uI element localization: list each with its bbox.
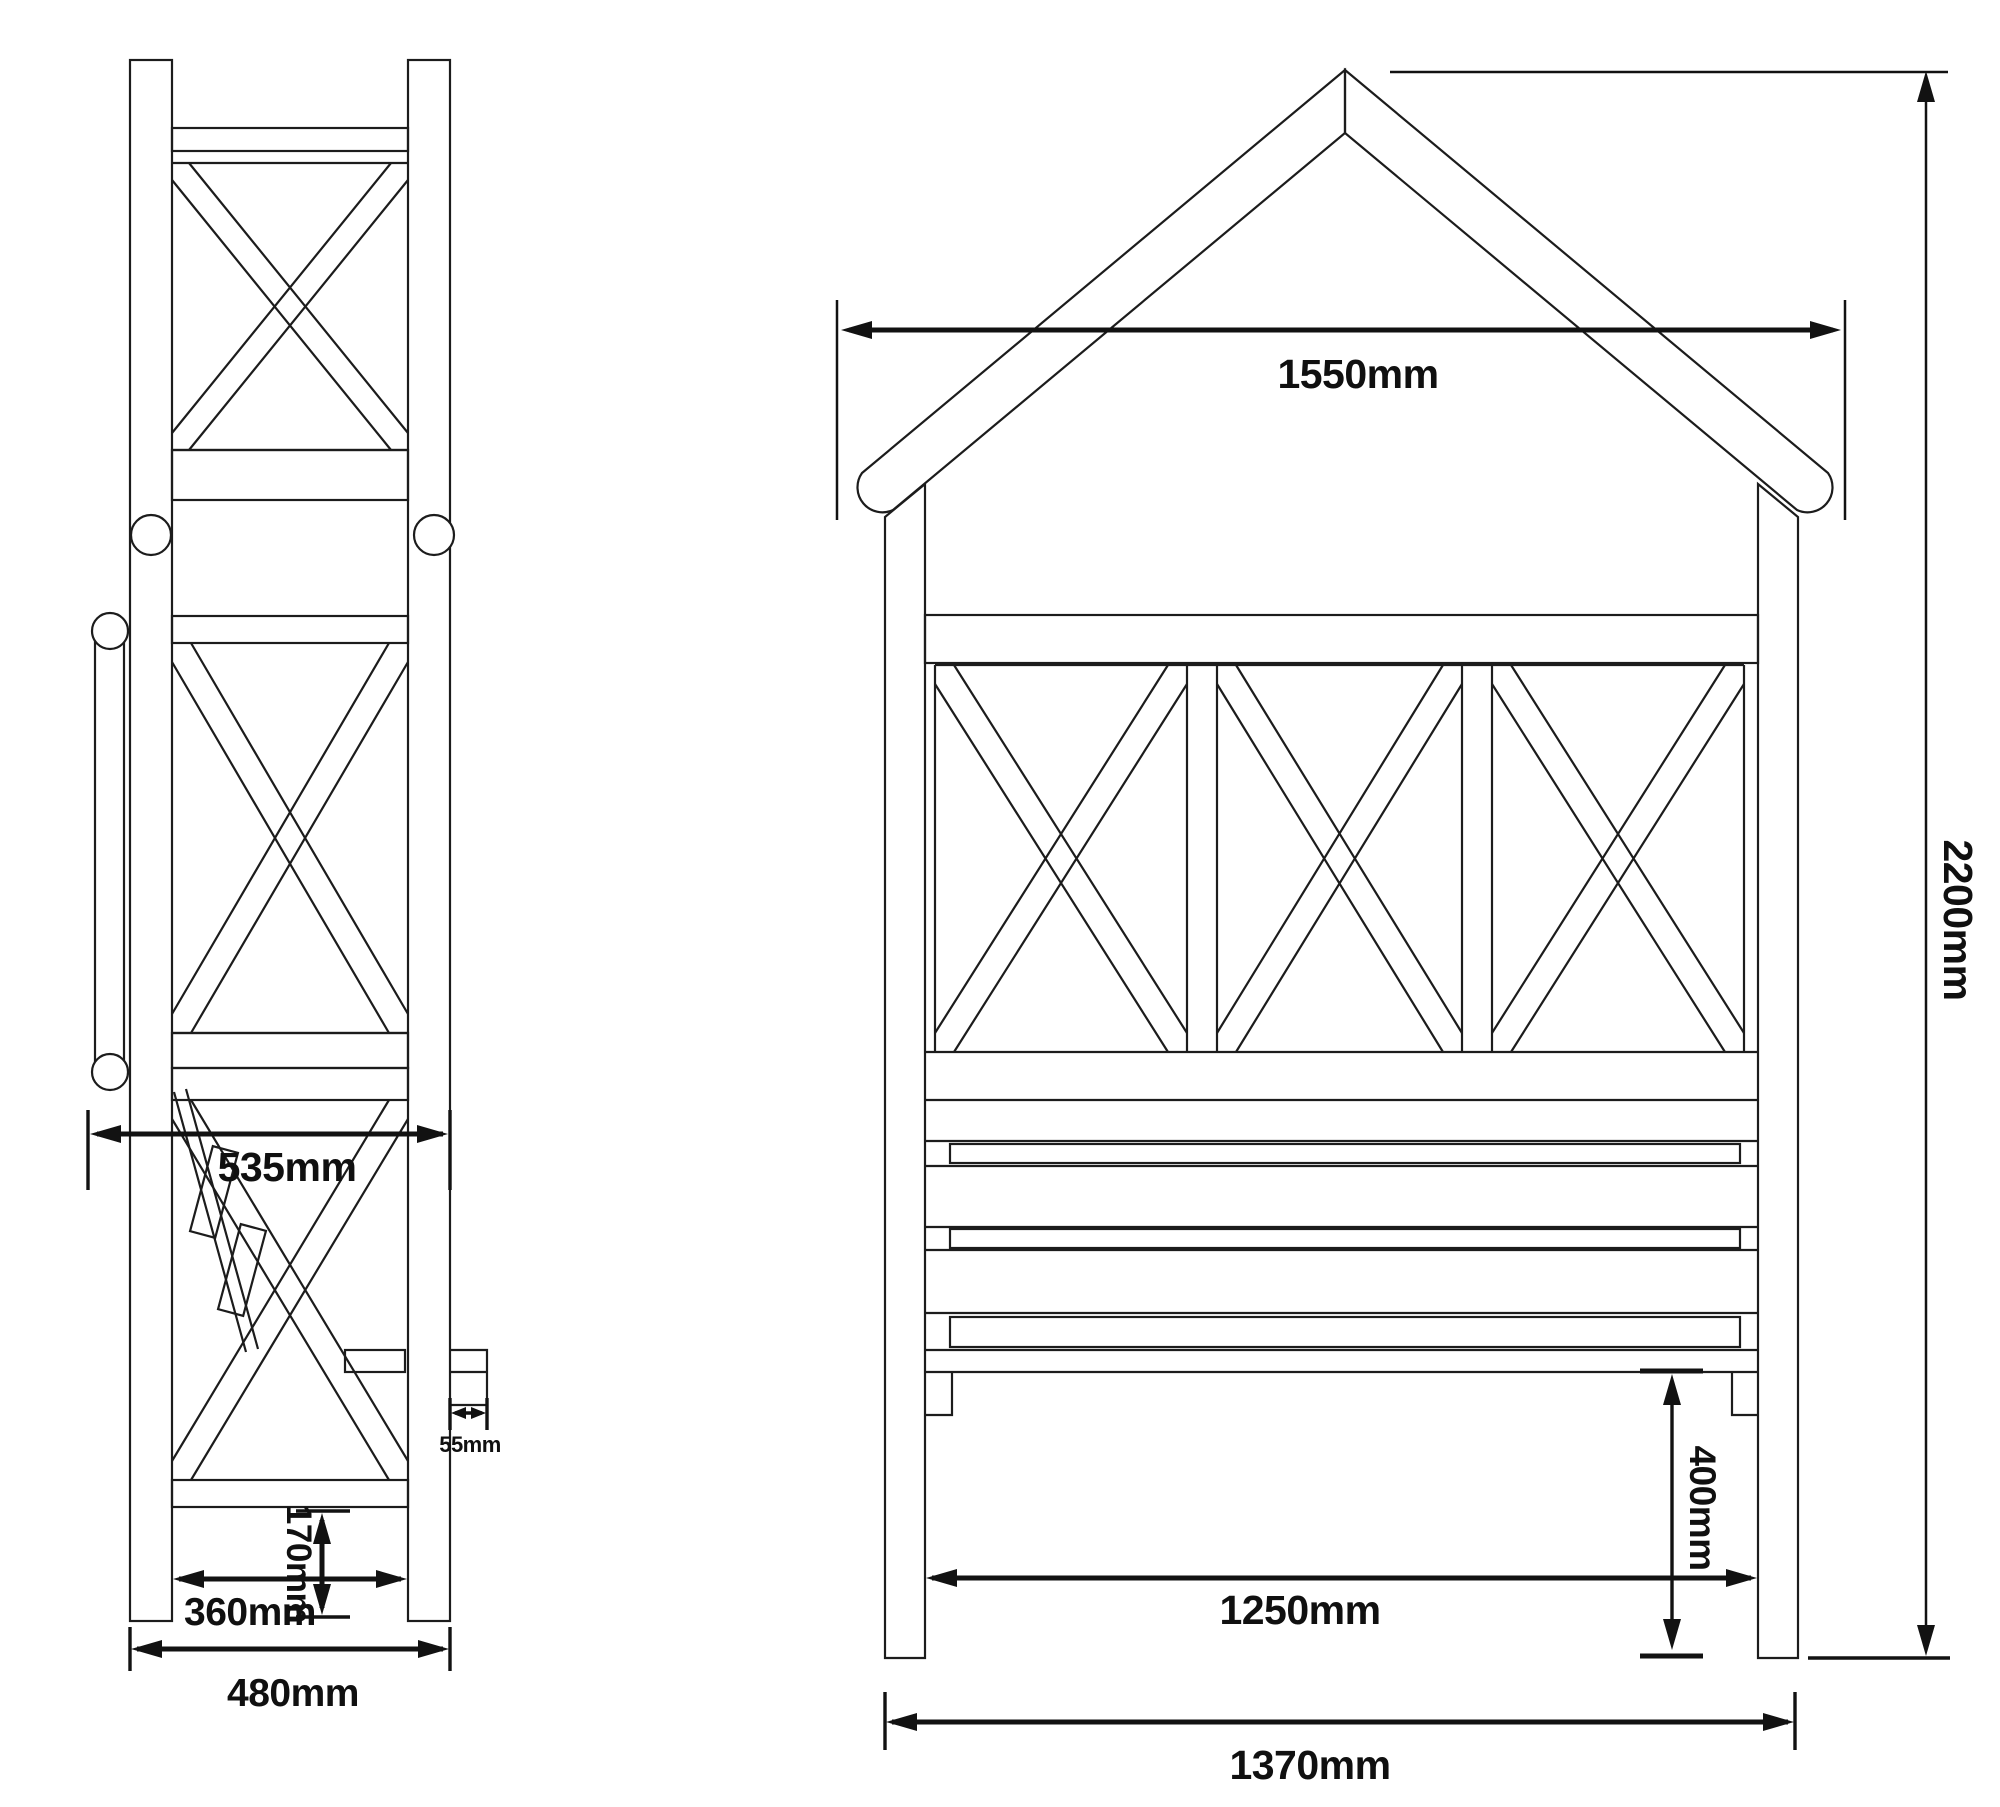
arrowhead-up-icon bbox=[1663, 1374, 1681, 1405]
arrowhead-right-icon bbox=[418, 1640, 449, 1658]
side-top-rail bbox=[172, 128, 408, 151]
side-armrest-bar bbox=[95, 640, 124, 1062]
front-view: 1550mm 2200mm 400mm 1250mm bbox=[837, 70, 1981, 1788]
dimension-front-inner-width: 1250mm bbox=[926, 1569, 1757, 1633]
dimension-front-height: 2200mm bbox=[1390, 71, 1981, 1658]
dim-1250-label: 1250mm bbox=[1219, 1587, 1380, 1633]
arrowhead-down-icon bbox=[1917, 1625, 1935, 1656]
arrowhead-left-icon bbox=[131, 1640, 162, 1658]
arrowhead-left-icon bbox=[886, 1713, 917, 1731]
side-seat-slat-section bbox=[345, 1350, 405, 1372]
side-armrest-bottom-peg bbox=[92, 1054, 128, 1090]
side-left-dowel-peg bbox=[131, 515, 171, 555]
dimension-front-outer-width: 1370mm bbox=[885, 1692, 1795, 1788]
dimension-side-outer-width: 480mm bbox=[130, 1627, 450, 1715]
arrowhead-left-icon bbox=[841, 321, 872, 339]
dim-535-label: 535mm bbox=[218, 1144, 357, 1190]
side-mid-rail bbox=[172, 616, 408, 643]
front-left-post bbox=[885, 484, 925, 1658]
dimension-side-inner-width: 360mm bbox=[173, 1570, 407, 1634]
arrowhead-down-icon bbox=[1663, 1619, 1681, 1650]
side-upper-x-brace bbox=[172, 163, 408, 450]
dimension-side-depth: 535mm bbox=[88, 1110, 450, 1190]
side-seat-rail bbox=[172, 1068, 408, 1100]
front-roof-left-board bbox=[857, 70, 1345, 512]
dim-2200-label: 2200mm bbox=[1935, 839, 1981, 1000]
side-middle-x-brace bbox=[172, 643, 408, 1033]
arrowhead-right-icon bbox=[1726, 1569, 1757, 1587]
dim-1370-label: 1370mm bbox=[1229, 1742, 1390, 1788]
dim-55-label: 55mm bbox=[439, 1432, 501, 1457]
front-x-brace-center bbox=[1217, 665, 1462, 1052]
front-seat-support-stubs bbox=[925, 1372, 1758, 1415]
dimension-side-tab: 55mm bbox=[439, 1398, 501, 1457]
front-back-panel-frame bbox=[935, 665, 1744, 1052]
front-top-rail bbox=[925, 615, 1758, 663]
extension-ticks bbox=[837, 300, 1845, 520]
arrowhead-left-icon bbox=[90, 1125, 121, 1143]
arrowhead-left-icon bbox=[926, 1569, 957, 1587]
front-roof-right-board bbox=[1345, 70, 1833, 512]
arrowhead-left-icon bbox=[173, 1570, 204, 1588]
dim-1550-label: 1550mm bbox=[1277, 351, 1438, 397]
arrowhead-right-icon bbox=[417, 1125, 448, 1143]
arrowhead-right-icon bbox=[1763, 1713, 1794, 1731]
arrowhead-right-icon bbox=[471, 1407, 486, 1419]
side-seat-back-rail bbox=[172, 1033, 408, 1068]
arrowhead-right-icon bbox=[376, 1570, 407, 1588]
dimension-front-roof-width: 1550mm bbox=[837, 300, 1845, 520]
dimension-front-seat-height: 400mm bbox=[1640, 1371, 1723, 1656]
side-backrest-board-section-2 bbox=[218, 1224, 266, 1316]
dim-400-label: 400mm bbox=[1682, 1445, 1723, 1570]
side-upper-band bbox=[172, 450, 408, 500]
front-x-brace-right bbox=[1492, 665, 1744, 1052]
arrowhead-left-icon bbox=[451, 1407, 466, 1419]
dim-360-label: 360mm bbox=[184, 1591, 316, 1634]
side-backrest-support bbox=[174, 1089, 258, 1352]
side-view: 535mm 55mm 170mm 360mm bbox=[88, 60, 501, 1715]
dim-480-label: 480mm bbox=[227, 1672, 359, 1715]
arrowhead-up-icon bbox=[1917, 71, 1935, 102]
front-right-post bbox=[1758, 484, 1798, 1658]
front-seat-slat-3 bbox=[950, 1317, 1740, 1347]
arrowhead-right-icon bbox=[1810, 321, 1841, 339]
side-armrest-top-peg bbox=[92, 613, 128, 649]
side-left-post bbox=[130, 60, 172, 1621]
side-right-post bbox=[408, 60, 450, 1621]
front-seat-slat-2 bbox=[950, 1229, 1740, 1248]
side-rear-rail-tab bbox=[450, 1350, 487, 1405]
side-right-dowel-peg bbox=[414, 515, 454, 555]
side-upper-panel-frame bbox=[172, 163, 408, 450]
front-seat-rails bbox=[925, 1052, 1758, 1372]
front-x-brace-left bbox=[935, 665, 1187, 1052]
technical-drawing: 535mm 55mm 170mm 360mm bbox=[0, 0, 2000, 1807]
drawing-page: 535mm 55mm 170mm 360mm bbox=[0, 0, 2000, 1807]
front-seat-slat-1 bbox=[950, 1144, 1740, 1163]
side-bottom-rail bbox=[172, 1480, 408, 1507]
